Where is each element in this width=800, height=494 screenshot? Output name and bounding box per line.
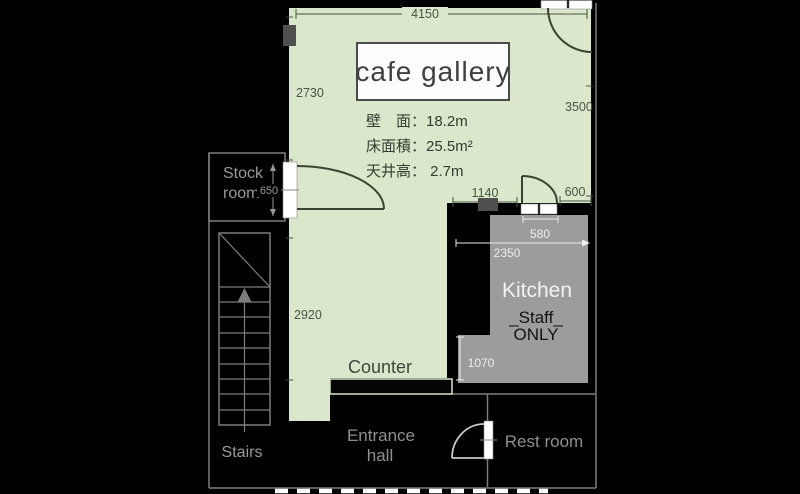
dim-kitchen-passage: 1070 [468, 356, 495, 370]
kitchen-door-panel [521, 204, 538, 214]
dim-door-offset: 1140 [472, 186, 499, 200]
floor-plan-svg: 4150 2730 3500 2920 cafe gallery 壁 面：18.… [0, 0, 800, 494]
spec-floor-area: 床面積：25.5m² [366, 138, 473, 155]
wall-stub-block [478, 198, 498, 211]
counter-bar [330, 379, 452, 394]
kitchen-staff-label-2: ONLY [513, 325, 558, 344]
dim-kitchen-door: 580 [530, 227, 550, 241]
dim-right-door: 600 [565, 185, 586, 199]
page-title: cafe gallery [355, 56, 510, 87]
stock-room-label-1: Stock [223, 165, 264, 182]
dim-left-upper: 2730 [296, 86, 324, 100]
stairs-label: Stairs [222, 444, 263, 461]
kitchen-door-panel2 [540, 204, 557, 214]
gallery-entry-door-panel2 [569, 1, 592, 10]
spec-wall-length: 壁 面：18.2m [366, 113, 468, 130]
spec-ceiling-height: 天井高： 2.7m [366, 163, 464, 180]
dim-right-height: 3500 [565, 100, 593, 114]
dim-top-width: 4150 [411, 7, 439, 21]
stock-room-label-2: room [223, 185, 259, 202]
kitchen-label: Kitchen [502, 279, 572, 302]
rest-room-label: Rest room [505, 432, 583, 451]
gallery-entry-door-panel [541, 1, 567, 10]
counter-label: Counter [348, 357, 412, 377]
wall-window [283, 25, 296, 46]
entrance-hall-label-1: Entrance [347, 426, 415, 445]
dim-left-lower: 2920 [294, 308, 322, 322]
floor-plan: 4150 2730 3500 2920 cafe gallery 壁 面：18.… [0, 0, 800, 494]
dim-kitchen-width: 2350 [494, 246, 521, 260]
dim-stock-door: 650 [260, 185, 278, 197]
entrance-hall-label-2: hall [367, 446, 393, 465]
